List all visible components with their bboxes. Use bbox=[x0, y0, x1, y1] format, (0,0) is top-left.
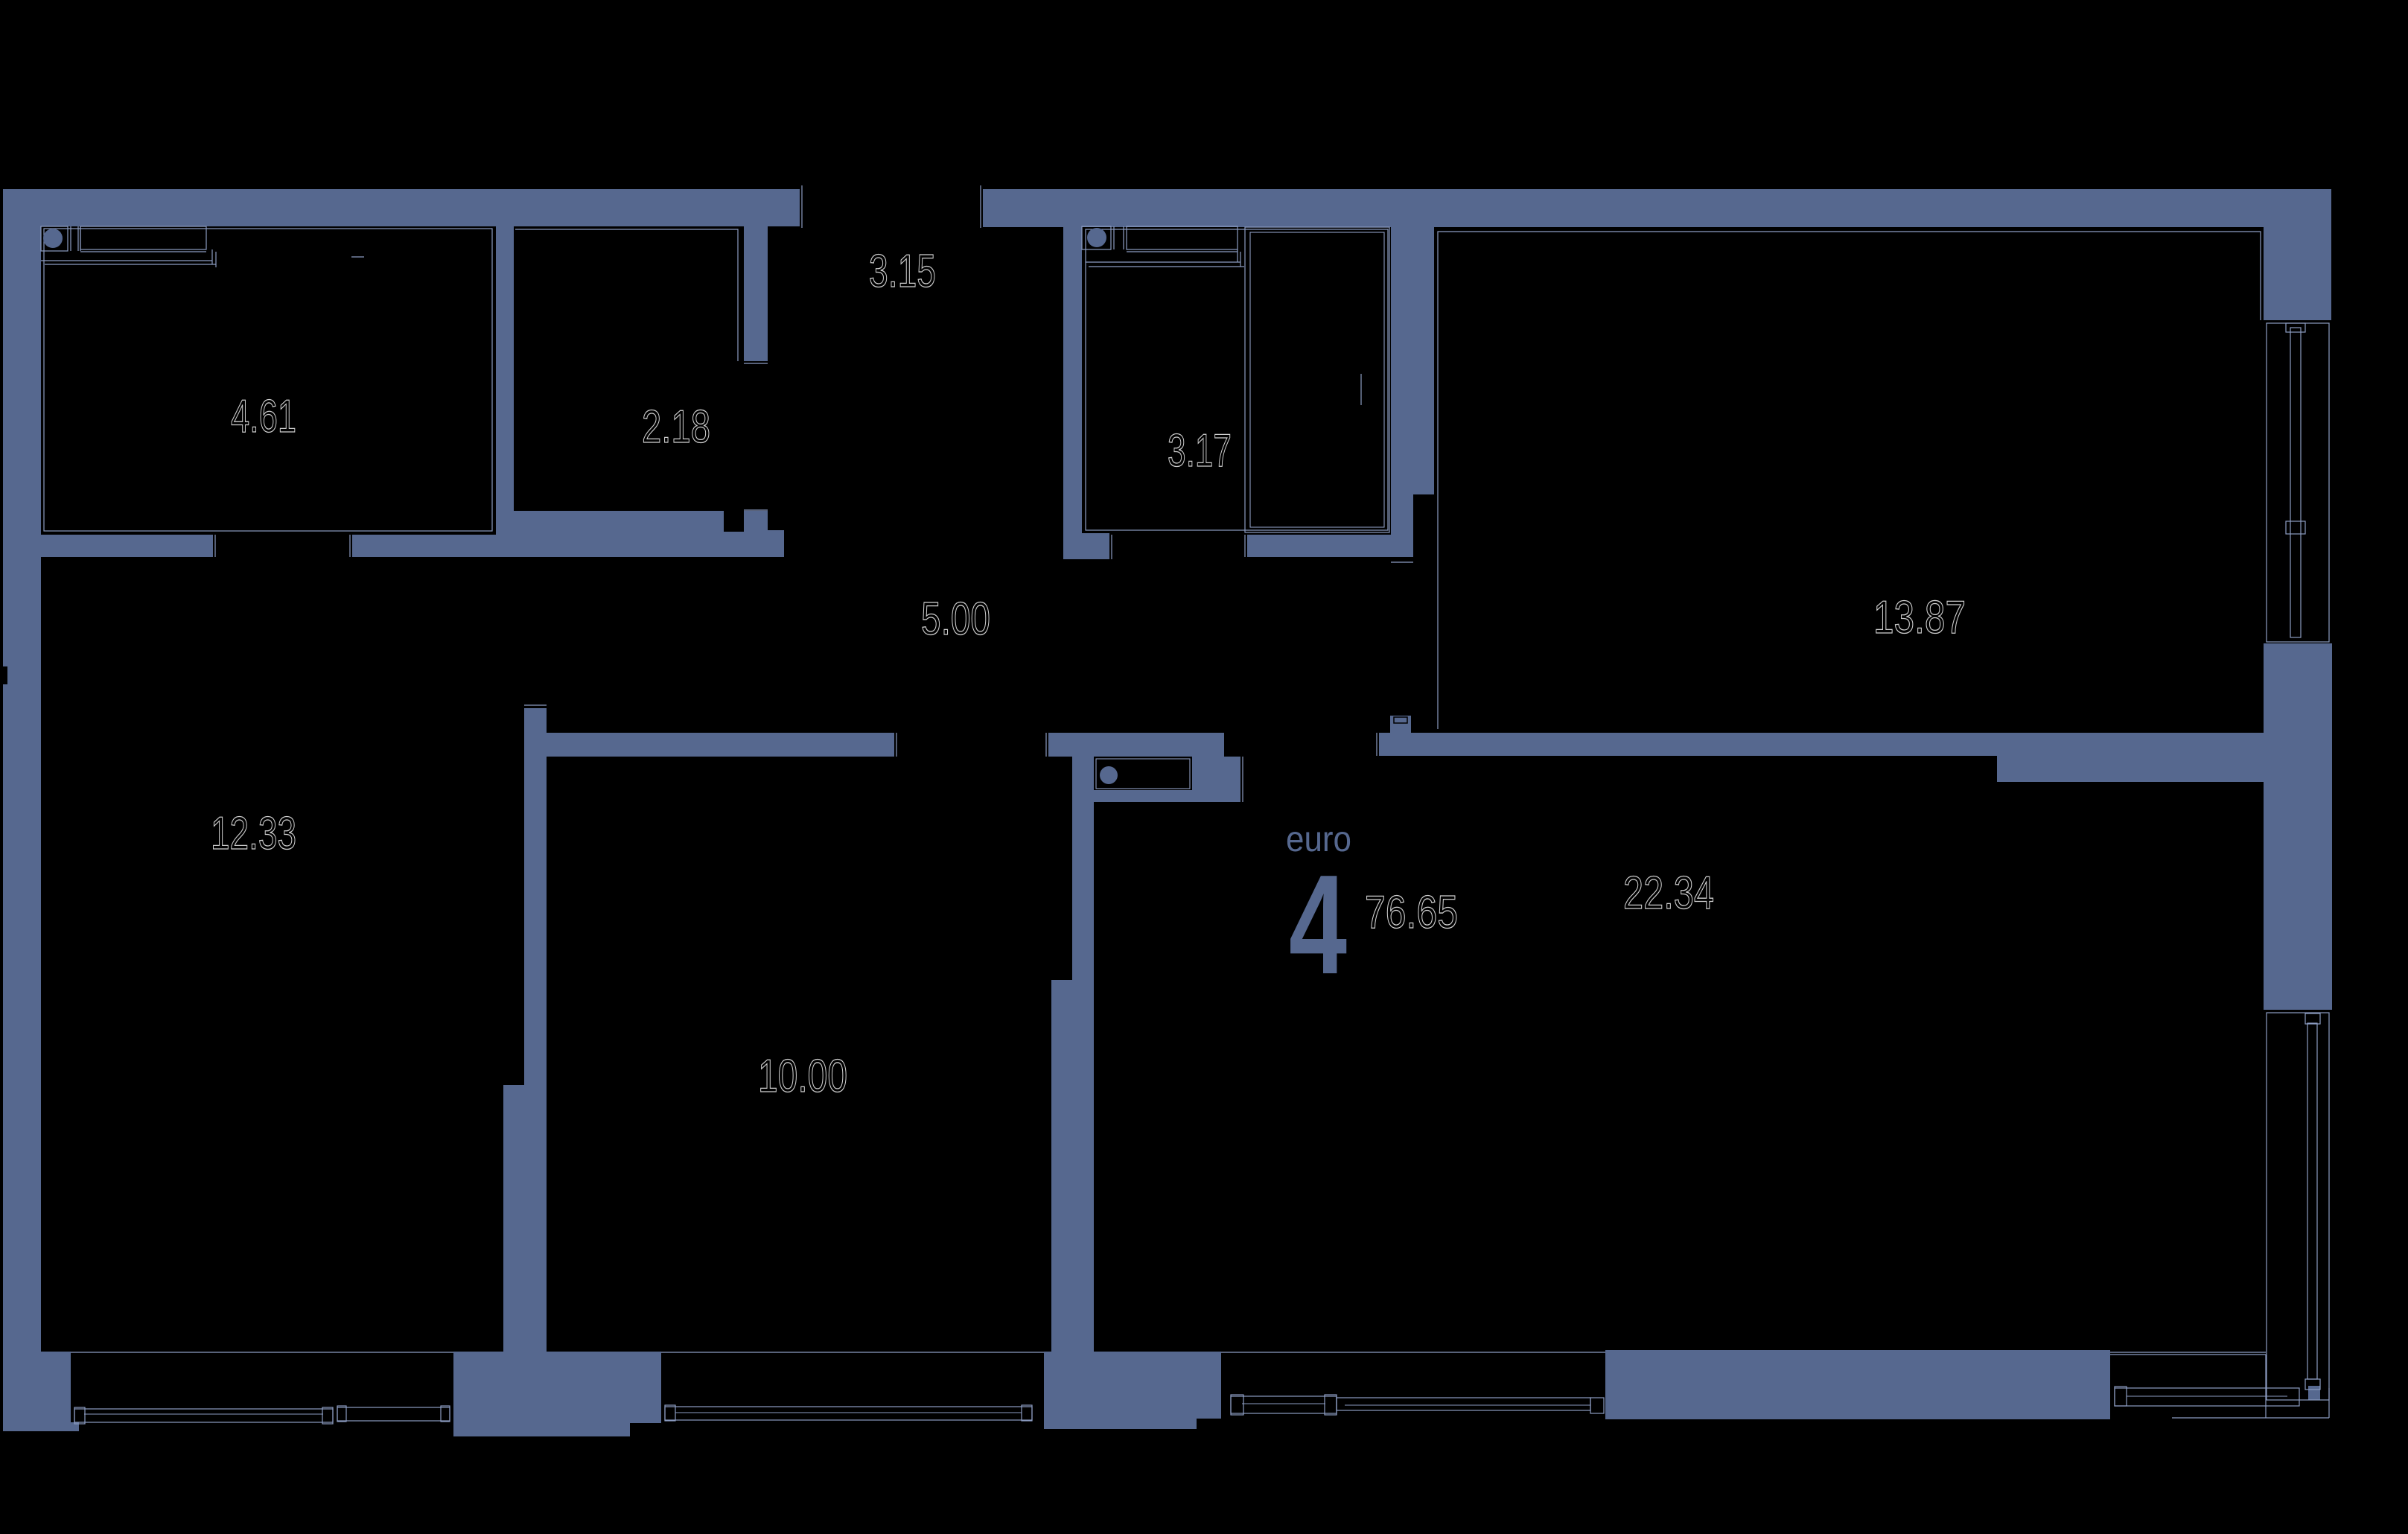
svg-text:4: 4 bbox=[1289, 846, 1347, 1004]
svg-text:10.00: 10.00 bbox=[758, 1051, 847, 1102]
svg-text:76.65: 76.65 bbox=[1365, 887, 1458, 938]
svg-text:13.87: 13.87 bbox=[1873, 592, 1966, 643]
svg-text:22.34: 22.34 bbox=[1623, 868, 1714, 919]
svg-text:12.33: 12.33 bbox=[211, 808, 296, 859]
svg-text:4.61: 4.61 bbox=[231, 391, 296, 442]
svg-text:3.15: 3.15 bbox=[869, 246, 936, 297]
svg-text:5.00: 5.00 bbox=[921, 593, 990, 645]
svg-text:2.18: 2.18 bbox=[642, 401, 710, 453]
svg-text:3.17: 3.17 bbox=[1168, 425, 1232, 477]
